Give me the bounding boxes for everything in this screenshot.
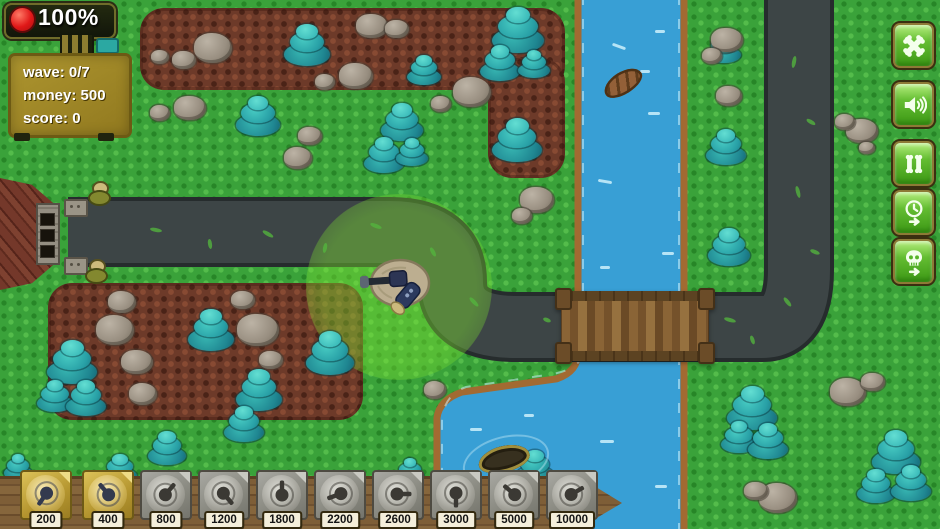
tree [236, 369, 282, 410]
bridge-post [698, 288, 715, 310]
shop-item[interactable]: 2600 [372, 470, 424, 520]
health-value: 100% [38, 4, 99, 31]
gunner-tower[interactable] [360, 252, 440, 320]
card-fold [411, 472, 422, 483]
rock [339, 63, 373, 90]
price-tag: 3000 [436, 511, 476, 529]
tree [47, 340, 97, 385]
pause-icon [901, 151, 927, 177]
castle-window [40, 229, 55, 242]
fast-forward-icon [901, 198, 927, 227]
rock [237, 314, 279, 347]
tower-icon [267, 479, 297, 509]
card-fold [121, 472, 132, 483]
tree [407, 55, 441, 86]
rock [859, 142, 875, 154]
tower-icon [441, 479, 471, 509]
bridge-rail [559, 291, 711, 301]
hud-foot [98, 133, 114, 141]
rock [150, 105, 170, 121]
card-fold [469, 472, 480, 483]
tree [480, 45, 520, 81]
tree [891, 465, 931, 501]
shop-item[interactable]: 3000 [430, 470, 482, 520]
shop-item[interactable]: 10000 [546, 470, 598, 520]
rock [315, 74, 335, 90]
castle-window [40, 245, 55, 258]
rock [431, 96, 451, 112]
rock [259, 351, 283, 370]
score-stat: score: 0 [11, 107, 129, 130]
price-tag: 800 [149, 511, 182, 529]
card-fold [179, 472, 190, 483]
rock [108, 291, 136, 313]
tree [708, 228, 750, 266]
tree [381, 103, 423, 141]
bridge-post [698, 342, 715, 364]
fast-forward-button[interactable] [895, 192, 932, 233]
money-stat: money: 500 [11, 84, 129, 107]
rock [174, 96, 206, 121]
card-fold [353, 472, 364, 483]
water-ripple [524, 414, 534, 417]
price-tag: 1800 [262, 511, 302, 529]
tree [148, 431, 186, 465]
tree [66, 380, 106, 416]
price-tag: 2200 [320, 511, 360, 529]
hud-foot [14, 133, 30, 141]
tree [236, 96, 280, 136]
rock [356, 14, 388, 39]
bridge-post [555, 342, 572, 364]
rock [702, 48, 722, 64]
tree [188, 309, 234, 350]
card-fold [527, 472, 538, 483]
water-ripple [648, 112, 660, 115]
rock [96, 315, 134, 345]
defender-unit [83, 259, 107, 283]
price-tag: 5000 [494, 511, 534, 529]
settings-icon [901, 33, 927, 59]
defender-unit [86, 181, 110, 205]
next-wave-button[interactable] [895, 241, 932, 282]
rock [172, 51, 196, 70]
rock [385, 20, 409, 39]
rock [121, 350, 153, 375]
rock [453, 77, 491, 107]
rock [231, 291, 255, 310]
tree [748, 423, 788, 459]
next-wave-skull-icon [901, 247, 927, 276]
tree [706, 129, 746, 165]
water-ripple [655, 485, 667, 488]
tower-icon [383, 479, 413, 509]
pause-button[interactable] [895, 143, 932, 184]
tree [306, 331, 354, 374]
wave-stat: wave: 0/7 [11, 61, 129, 84]
tree [857, 469, 895, 503]
bridge-post [555, 288, 572, 310]
health-light-icon [9, 6, 36, 33]
rock [716, 86, 742, 106]
rock [194, 33, 232, 63]
stats-panel: wave: 0/7 money: 500 score: 0 [8, 53, 132, 138]
price-tag: 2600 [378, 511, 418, 529]
rock [744, 482, 768, 501]
shop-item[interactable]: 200 [20, 470, 72, 520]
gate-post [64, 199, 88, 217]
bridge-planks [561, 298, 709, 354]
tree [224, 406, 264, 442]
bridge-rail [559, 351, 711, 361]
rock [861, 373, 885, 392]
rock [151, 50, 169, 64]
water-ripple [600, 266, 610, 269]
bridge [561, 291, 709, 361]
shop-item[interactable]: 1200 [198, 470, 250, 520]
tree [518, 50, 550, 79]
castle-window [40, 213, 55, 226]
water-ripple [470, 428, 482, 431]
shop-item[interactable]: 5000 [488, 470, 540, 520]
shop-item[interactable]: 2200 [314, 470, 366, 520]
rock [835, 114, 855, 130]
hud-pipe [96, 38, 119, 54]
price-tag: 1200 [204, 511, 244, 529]
water-ripple [655, 30, 665, 33]
rock [298, 127, 322, 146]
price-tag: 10000 [549, 511, 595, 529]
price-tag: 200 [29, 511, 62, 529]
price-tag: 400 [91, 511, 124, 529]
water-ripple [600, 440, 614, 443]
card-fold [237, 472, 248, 483]
rock [284, 147, 312, 169]
sound-icon [901, 92, 927, 118]
rock [129, 383, 157, 405]
water-ripple [662, 252, 674, 255]
tree [492, 118, 542, 163]
card-fold [295, 472, 306, 483]
shop-item[interactable]: 800 [140, 470, 192, 520]
settings-button[interactable] [895, 25, 932, 66]
sound-button[interactable] [895, 84, 932, 125]
rock [424, 381, 446, 398]
shop-item[interactable]: 1800 [256, 470, 308, 520]
rock [512, 208, 532, 224]
game-map[interactable]: 100% wave: 0/7 money: 500 score: 0 [0, 0, 940, 529]
shop-item[interactable]: 400 [82, 470, 134, 520]
tree [396, 138, 428, 167]
card-fold [585, 472, 596, 483]
card-fold [59, 472, 70, 483]
tree [284, 24, 330, 65]
